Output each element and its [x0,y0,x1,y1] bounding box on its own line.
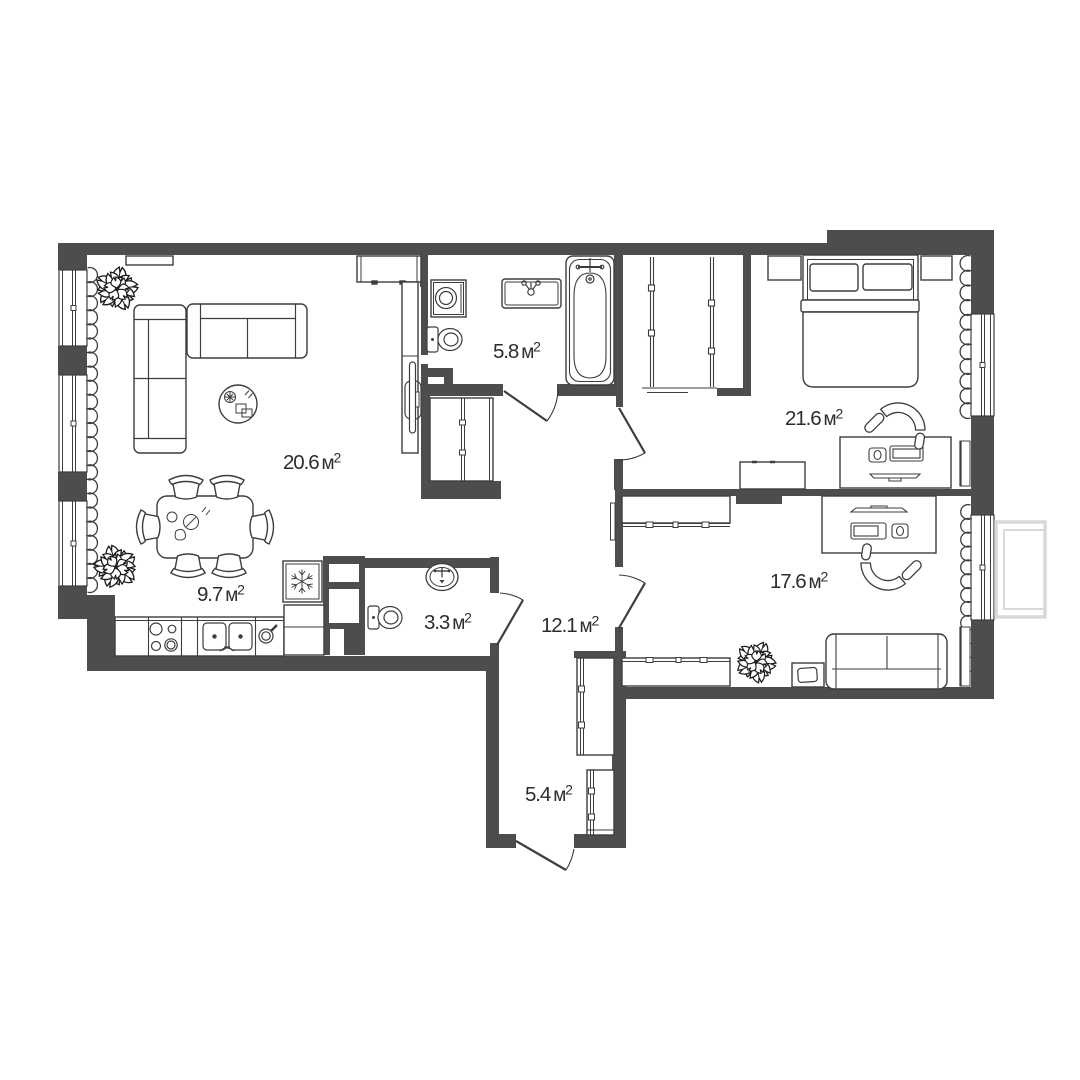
svg-text:12.1 м2: 12.1 м2 [541,613,599,638]
svg-text:21.6 м2: 21.6 м2 [785,406,843,431]
svg-text:20.6 м2: 20.6 м2 [283,450,341,475]
svg-text:17.6 м2: 17.6 м2 [770,569,828,594]
